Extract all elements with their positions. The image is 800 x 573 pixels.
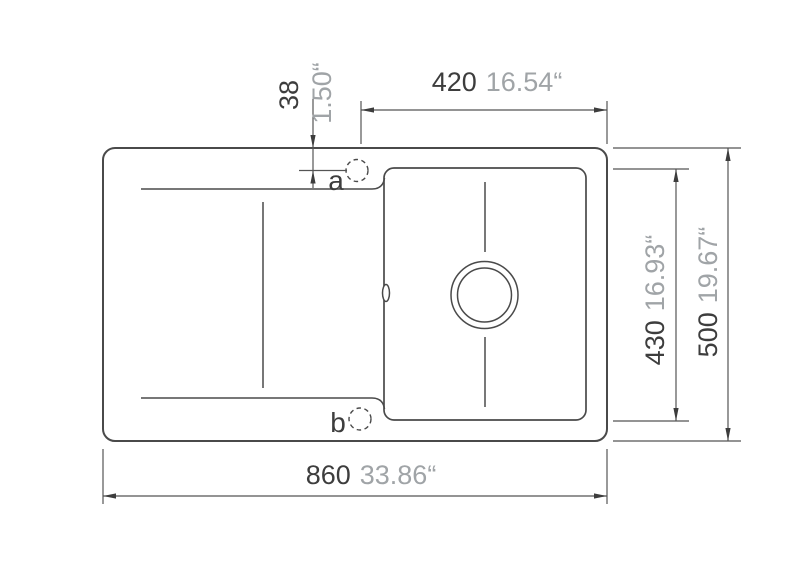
sink-dimension-diagram: a b 38 1.50“ 42016.54“ 4 — [0, 0, 800, 573]
dimension-inner-height: 43016.93“ — [613, 169, 689, 421]
drainboard-top-line — [141, 178, 385, 189]
dim-430-label: 43016.93“ — [640, 235, 670, 366]
dim-420-mm: 420 — [432, 67, 477, 97]
dim-430-arrow-up — [673, 169, 678, 182]
dim-860-inch: 33.86“ — [360, 460, 437, 490]
tap-hole-a-label: a — [328, 165, 344, 196]
dim-500-arrow-up — [725, 148, 730, 161]
dim-430-inch: 16.93“ — [640, 235, 670, 312]
dimension-top-width: 42016.54“ — [361, 67, 607, 144]
dim-38-mm: 38 — [274, 80, 304, 110]
dim-500-mm: 500 — [693, 312, 723, 357]
drainboard-bottom-line — [141, 398, 385, 409]
dim-420-inch: 16.54“ — [486, 67, 563, 97]
dim-860-mm: 860 — [306, 460, 351, 490]
sink-outer-rim — [103, 148, 607, 441]
tap-hole-b-label: b — [330, 407, 346, 438]
dim-860-arrow-left — [103, 493, 116, 498]
tap-hole-b-circle — [349, 408, 371, 430]
dim-500-label: 50019.67“ — [693, 227, 723, 358]
overflow-notch — [383, 285, 390, 302]
dimension-outer-height: 50019.67“ — [613, 148, 741, 441]
dim-860-label: 86033.86“ — [306, 460, 437, 490]
dim-860-arrow-right — [594, 493, 607, 498]
dim-430-arrow-down — [673, 408, 678, 421]
dim-38-arrow-down — [310, 135, 315, 148]
drain-inner-circle — [458, 268, 512, 322]
dim-500-inch: 19.67“ — [693, 227, 723, 304]
dim-430-mm: 430 — [640, 320, 670, 365]
drain-outer-circle — [451, 262, 518, 329]
sink-geometry: a b — [103, 148, 607, 441]
dim-420-arrow-left — [361, 107, 374, 112]
tap-hole-a-circle — [346, 160, 368, 182]
dim-38-inch: 1.50“ — [307, 62, 337, 124]
dimension-overall-width: 86033.86“ — [103, 449, 607, 504]
dim-420-arrow-right — [594, 107, 607, 112]
dim-38-arrow-up — [310, 171, 315, 184]
dim-500-arrow-down — [725, 428, 730, 441]
technical-drawing-svg: a b 38 1.50“ 42016.54“ 4 — [0, 0, 800, 573]
dim-420-label: 42016.54“ — [432, 67, 563, 97]
